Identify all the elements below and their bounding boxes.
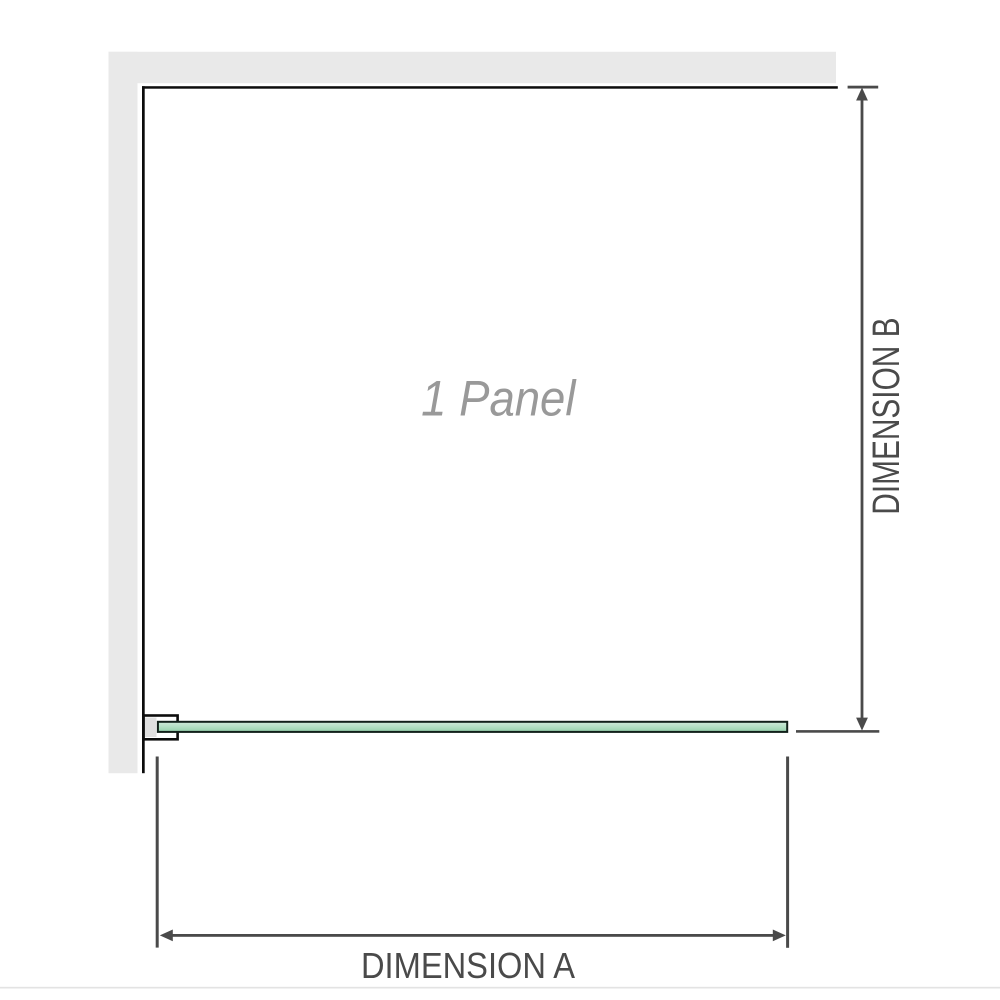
svg-text:1 Panel: 1 Panel xyxy=(421,372,577,427)
svg-text:DIMENSION A: DIMENSION A xyxy=(361,946,575,986)
svg-text:DIMENSION B: DIMENSION B xyxy=(865,317,907,514)
